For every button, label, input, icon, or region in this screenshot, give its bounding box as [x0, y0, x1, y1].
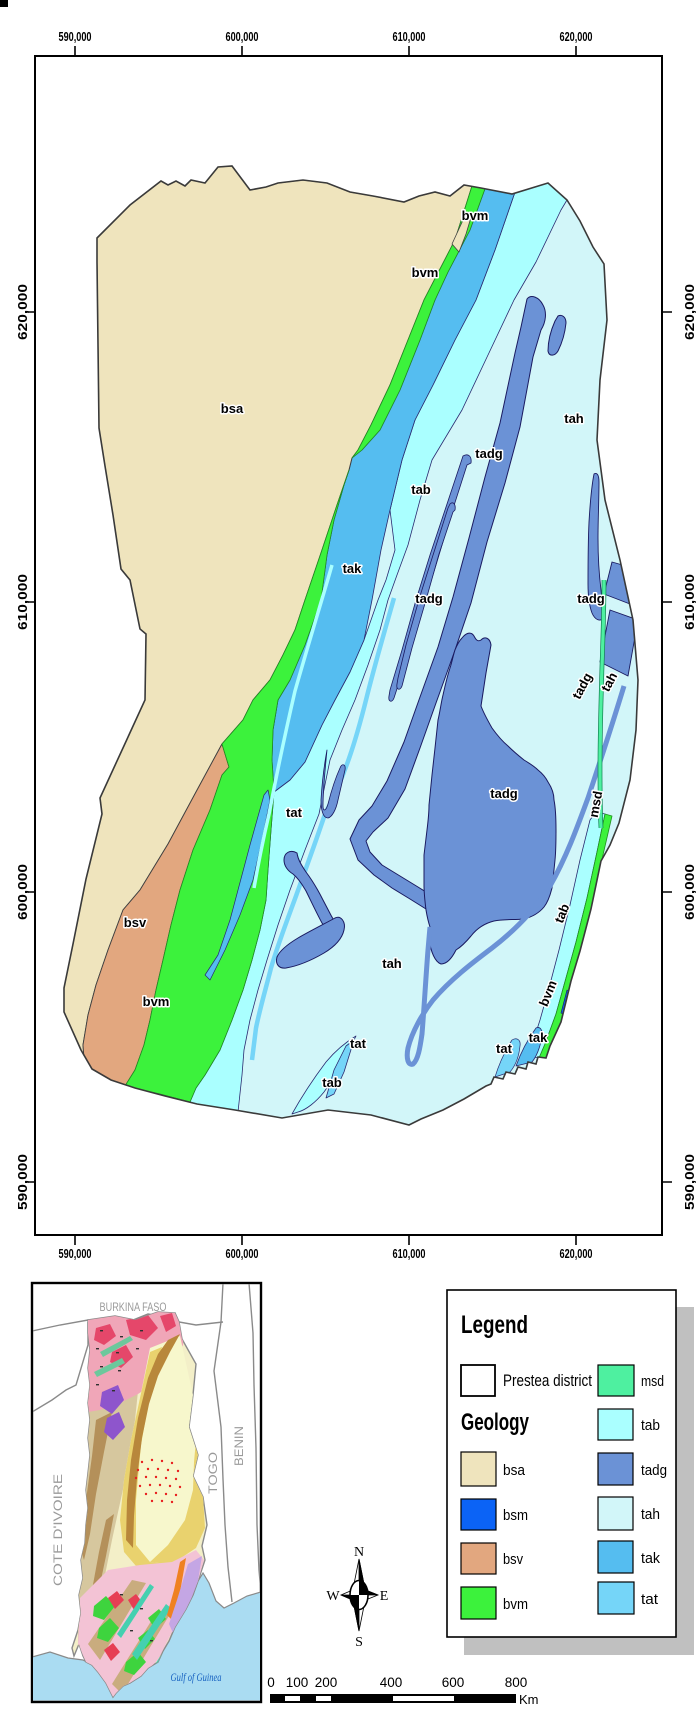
- svg-text:600,000: 600,000: [226, 29, 259, 44]
- svg-text:bsm: bsm: [503, 1507, 528, 1524]
- svg-text:msd: msd: [641, 1373, 664, 1390]
- svg-text:TOGO: TOGO: [208, 1452, 220, 1494]
- svg-text:tat: tat: [350, 1036, 367, 1051]
- svg-text:bsv: bsv: [503, 1551, 523, 1568]
- svg-text:tadg: tadg: [475, 446, 503, 461]
- svg-text:tadg: tadg: [641, 1462, 667, 1479]
- svg-text:tak: tak: [641, 1550, 660, 1567]
- svg-text:N: N: [354, 1545, 364, 1560]
- svg-text:E: E: [380, 1589, 389, 1604]
- svg-text:W: W: [326, 1589, 340, 1604]
- svg-text:600: 600: [442, 1675, 465, 1690]
- svg-text:Prestea district: Prestea district: [503, 1371, 592, 1390]
- svg-text:bvm: bvm: [462, 208, 489, 223]
- svg-text:600,000: 600,000: [226, 1246, 259, 1261]
- svg-text:tah: tah: [382, 956, 402, 971]
- svg-text:620,000: 620,000: [560, 29, 593, 44]
- svg-text:590,000: 590,000: [682, 1154, 697, 1210]
- svg-text:tah: tah: [564, 411, 584, 426]
- svg-text:BURKINA FASO: BURKINA FASO: [100, 1302, 167, 1314]
- svg-text:BENIN: BENIN: [234, 1426, 246, 1466]
- svg-text:800: 800: [505, 1675, 528, 1690]
- svg-text:Km: Km: [519, 1692, 539, 1707]
- svg-text:bvm: bvm: [503, 1596, 528, 1613]
- svg-text:tab: tab: [641, 1417, 660, 1434]
- svg-text:590,000: 590,000: [15, 1154, 30, 1210]
- svg-text:bvm: bvm: [412, 265, 439, 280]
- svg-text:0: 0: [267, 1675, 275, 1690]
- svg-text:tak: tak: [529, 1030, 549, 1045]
- svg-text:S: S: [355, 1635, 363, 1650]
- svg-text:tat: tat: [496, 1041, 513, 1056]
- svg-text:600,000: 600,000: [682, 864, 697, 920]
- svg-text:200: 200: [315, 1675, 338, 1690]
- svg-text:tah: tah: [641, 1506, 660, 1523]
- svg-text:Legend: Legend: [461, 1311, 528, 1339]
- svg-text:590,000: 590,000: [59, 1246, 92, 1261]
- svg-text:590,000: 590,000: [59, 29, 92, 44]
- svg-text:tadg: tadg: [415, 591, 443, 606]
- svg-text:600,000: 600,000: [15, 864, 30, 920]
- svg-text:bsa: bsa: [221, 401, 244, 416]
- svg-text:620,000: 620,000: [15, 284, 30, 340]
- svg-text:tab: tab: [322, 1075, 342, 1090]
- svg-text:tadg: tadg: [490, 786, 518, 801]
- svg-text:400: 400: [380, 1675, 403, 1690]
- svg-text:tadg: tadg: [577, 591, 605, 606]
- svg-text:bsv: bsv: [124, 915, 147, 930]
- svg-text:620,000: 620,000: [560, 1246, 593, 1261]
- svg-text:610,000: 610,000: [393, 1246, 426, 1261]
- svg-text:610,000: 610,000: [393, 29, 426, 44]
- svg-text:bsa: bsa: [503, 1462, 526, 1479]
- svg-text:tab: tab: [411, 482, 431, 497]
- svg-text:tat: tat: [286, 805, 303, 820]
- svg-text:610,000: 610,000: [682, 574, 697, 630]
- svg-text:Gulf of Guinea: Gulf of Guinea: [171, 1670, 222, 1684]
- svg-text:tak: tak: [343, 561, 363, 576]
- svg-text:620,000: 620,000: [682, 284, 697, 340]
- svg-text:100: 100: [286, 1675, 309, 1690]
- svg-text:bvm: bvm: [143, 994, 170, 1009]
- svg-text:tat: tat: [641, 1591, 659, 1608]
- svg-text:Geology: Geology: [461, 1409, 529, 1436]
- svg-text:COTE D'IVOIRE: COTE D'IVOIRE: [53, 1474, 65, 1586]
- svg-text:610,000: 610,000: [15, 574, 30, 630]
